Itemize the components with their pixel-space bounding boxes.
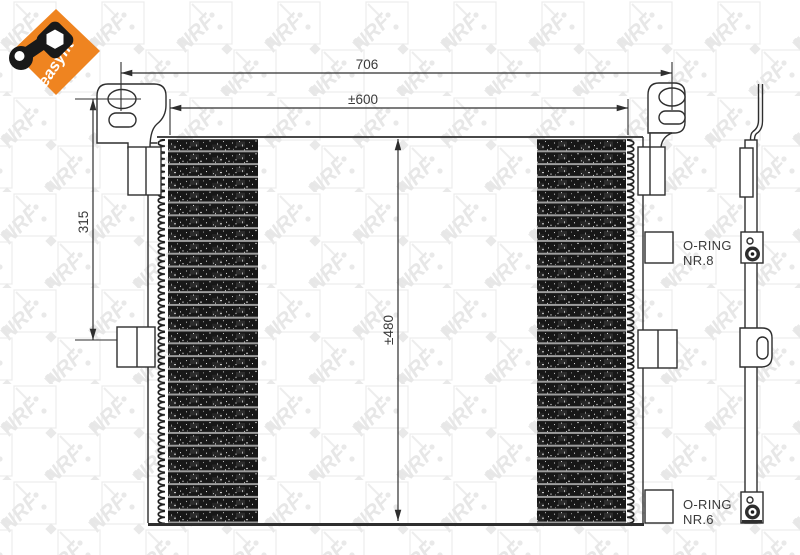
oring-nr8-label-line2: NR.8 [683,253,714,268]
fitting-block-right [638,330,677,368]
fin-core-right [537,139,626,523]
oring-port-nr6-front [645,490,673,523]
oring-port-nr8-front [645,232,673,263]
watermark-layer [0,0,800,555]
inlet-block-top-left [128,147,161,195]
side-oring-port-nr8 [741,232,763,263]
side-bracket-lug [740,328,772,367]
product-drawing-canvas: NRF [0,0,800,555]
dim-core-width-label: ±600 [348,92,378,107]
fin-zigzag-right [626,139,637,523]
dim-bracket-height-label: 315 [76,211,91,234]
oring-nr6-label-line2: NR.6 [683,512,714,527]
receiver-block-top-right [638,147,665,195]
dim-overall-width-label: 706 [356,57,379,72]
oring-nr8-label-line1: O-RING [683,238,732,253]
dim-core-height-label: ±480 [381,315,396,345]
fin-zigzag-left [157,139,168,523]
fin-core-left [168,139,258,523]
fitting-block-left [117,327,155,367]
side-drier-tube [740,148,753,197]
product-technical-drawing: NRF [0,0,800,555]
side-oring-port-nr6 [741,492,763,523]
oring-nr6-label-line1: O-RING [683,497,732,512]
